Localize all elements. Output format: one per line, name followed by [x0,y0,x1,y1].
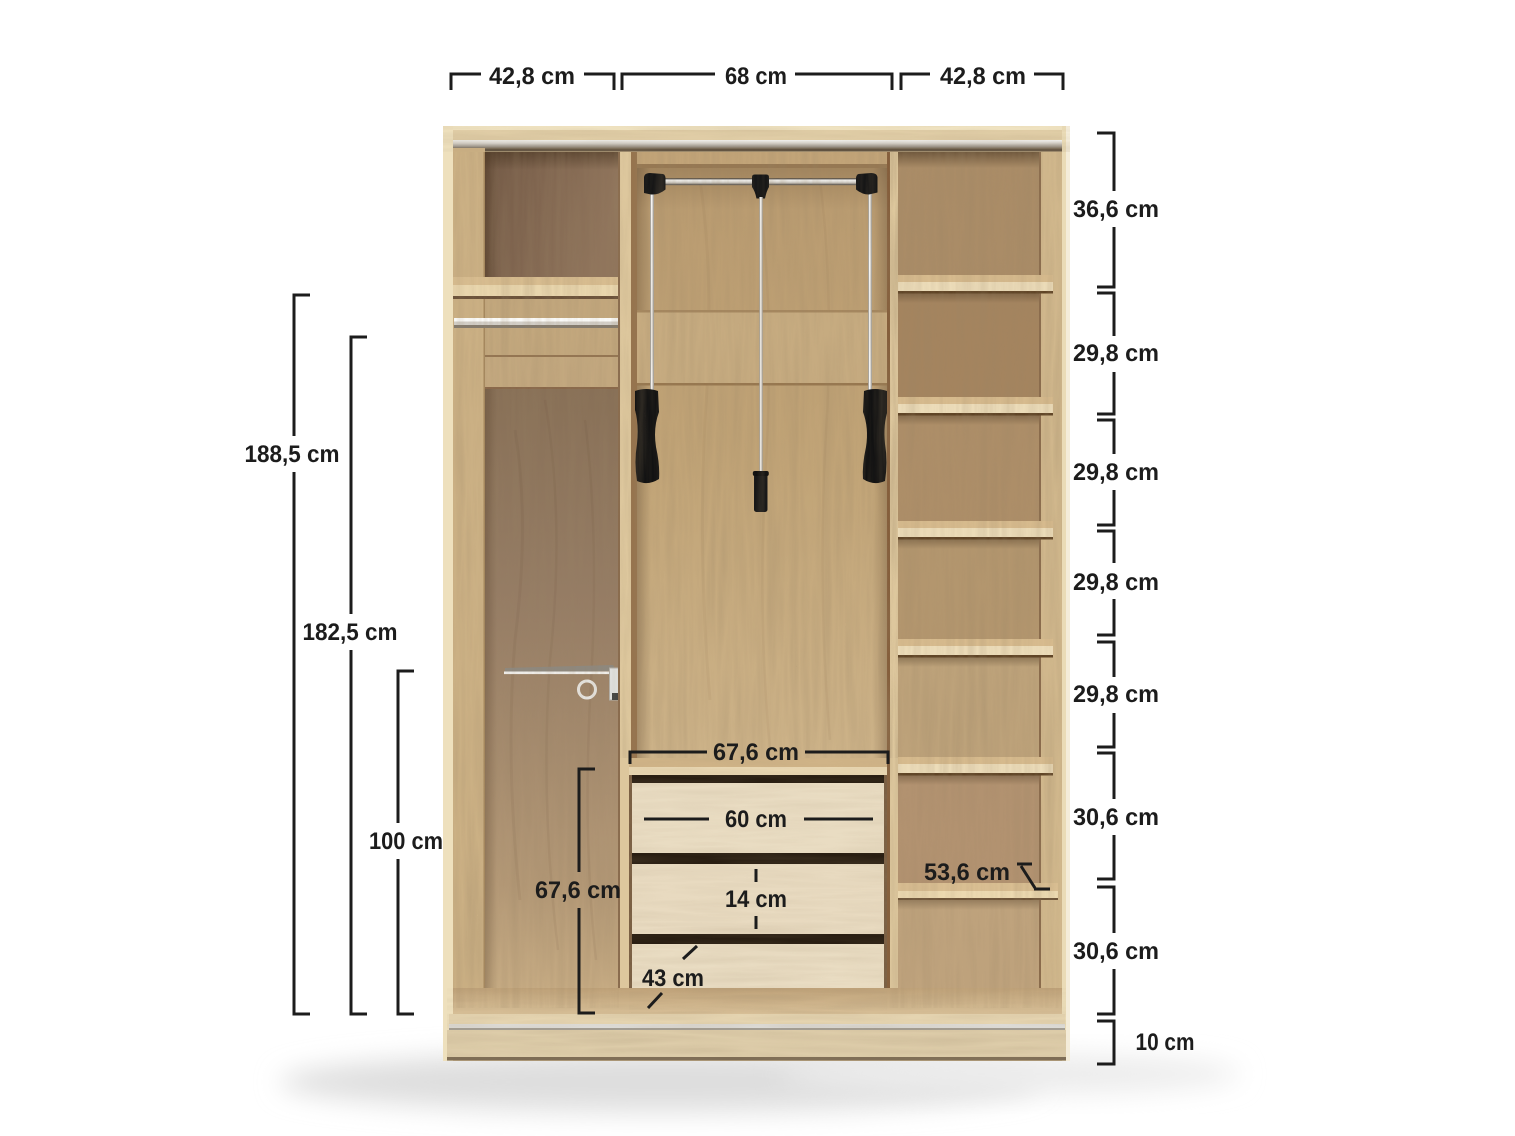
svg-text:42,8 cm: 42,8 cm [489,63,575,90]
svg-text:188,5 cm: 188,5 cm [245,441,340,468]
svg-text:29,8 cm: 29,8 cm [1073,340,1159,367]
svg-text:53,6 cm: 53,6 cm [924,859,1010,886]
svg-text:30,6 cm: 30,6 cm [1073,804,1159,831]
svg-text:36,6 cm: 36,6 cm [1073,196,1159,223]
svg-text:182,5 cm: 182,5 cm [303,619,398,646]
svg-text:60 cm: 60 cm [725,806,787,833]
svg-text:68 cm: 68 cm [725,63,787,90]
svg-text:67,6 cm: 67,6 cm [713,739,799,766]
svg-text:10 cm: 10 cm [1136,1029,1195,1056]
svg-text:30,6 cm: 30,6 cm [1073,938,1159,965]
svg-text:14 cm: 14 cm [725,886,787,913]
svg-text:29,8 cm: 29,8 cm [1073,459,1159,486]
svg-text:29,8 cm: 29,8 cm [1073,681,1159,708]
svg-text:67,6 cm: 67,6 cm [535,877,621,904]
svg-text:42,8 cm: 42,8 cm [940,63,1026,90]
svg-text:100 cm: 100 cm [369,828,443,855]
svg-text:29,8 cm: 29,8 cm [1073,569,1159,596]
svg-text:43 cm: 43 cm [642,965,704,992]
